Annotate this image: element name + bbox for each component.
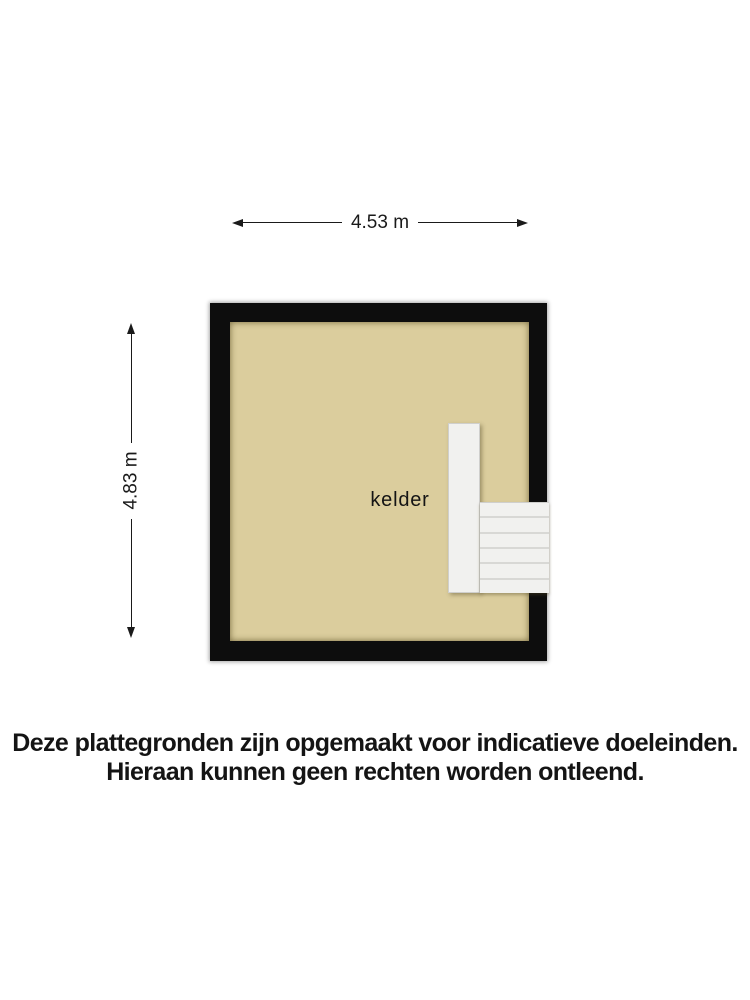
disclaimer-line-1: Deze plattegronden zijn opgemaakt voor i… xyxy=(0,729,750,758)
width-dimension: 4.53 m xyxy=(232,212,528,233)
stair-tread xyxy=(480,516,549,531)
stair-tread xyxy=(480,532,549,547)
arrow-up-icon xyxy=(127,323,135,334)
cellar-floor-area: kelder xyxy=(230,322,529,641)
height-dimension-label-wrap: 4.83 m xyxy=(120,443,142,519)
dimension-line xyxy=(131,519,132,628)
dimension-line xyxy=(243,222,342,223)
dimension-line xyxy=(131,334,132,443)
stair-tread xyxy=(480,578,549,593)
disclaimer-line-2: Hieraan kunnen geen rechten worden ontle… xyxy=(0,758,750,787)
height-dimension-label: 4.83 m xyxy=(121,451,142,509)
dimension-line xyxy=(418,222,517,223)
width-dimension-label: 4.53 m xyxy=(342,212,418,233)
floorplan-page: 4.53 m 4.83 m kelder Deze pla xyxy=(0,0,750,1000)
disclaimer: Deze plattegronden zijn opgemaakt voor i… xyxy=(0,729,750,787)
height-dimension: 4.83 m xyxy=(120,323,142,638)
staircase-steps xyxy=(480,502,549,593)
arrow-down-icon xyxy=(127,627,135,638)
staircase-landing xyxy=(448,423,480,593)
arrow-left-icon xyxy=(232,219,243,227)
stair-tread xyxy=(480,547,549,562)
stair-tread xyxy=(480,562,549,577)
floorplan-walls: kelder xyxy=(210,303,547,661)
stair-tread xyxy=(480,503,549,516)
arrow-right-icon xyxy=(517,219,528,227)
room-label: kelder xyxy=(340,489,460,512)
